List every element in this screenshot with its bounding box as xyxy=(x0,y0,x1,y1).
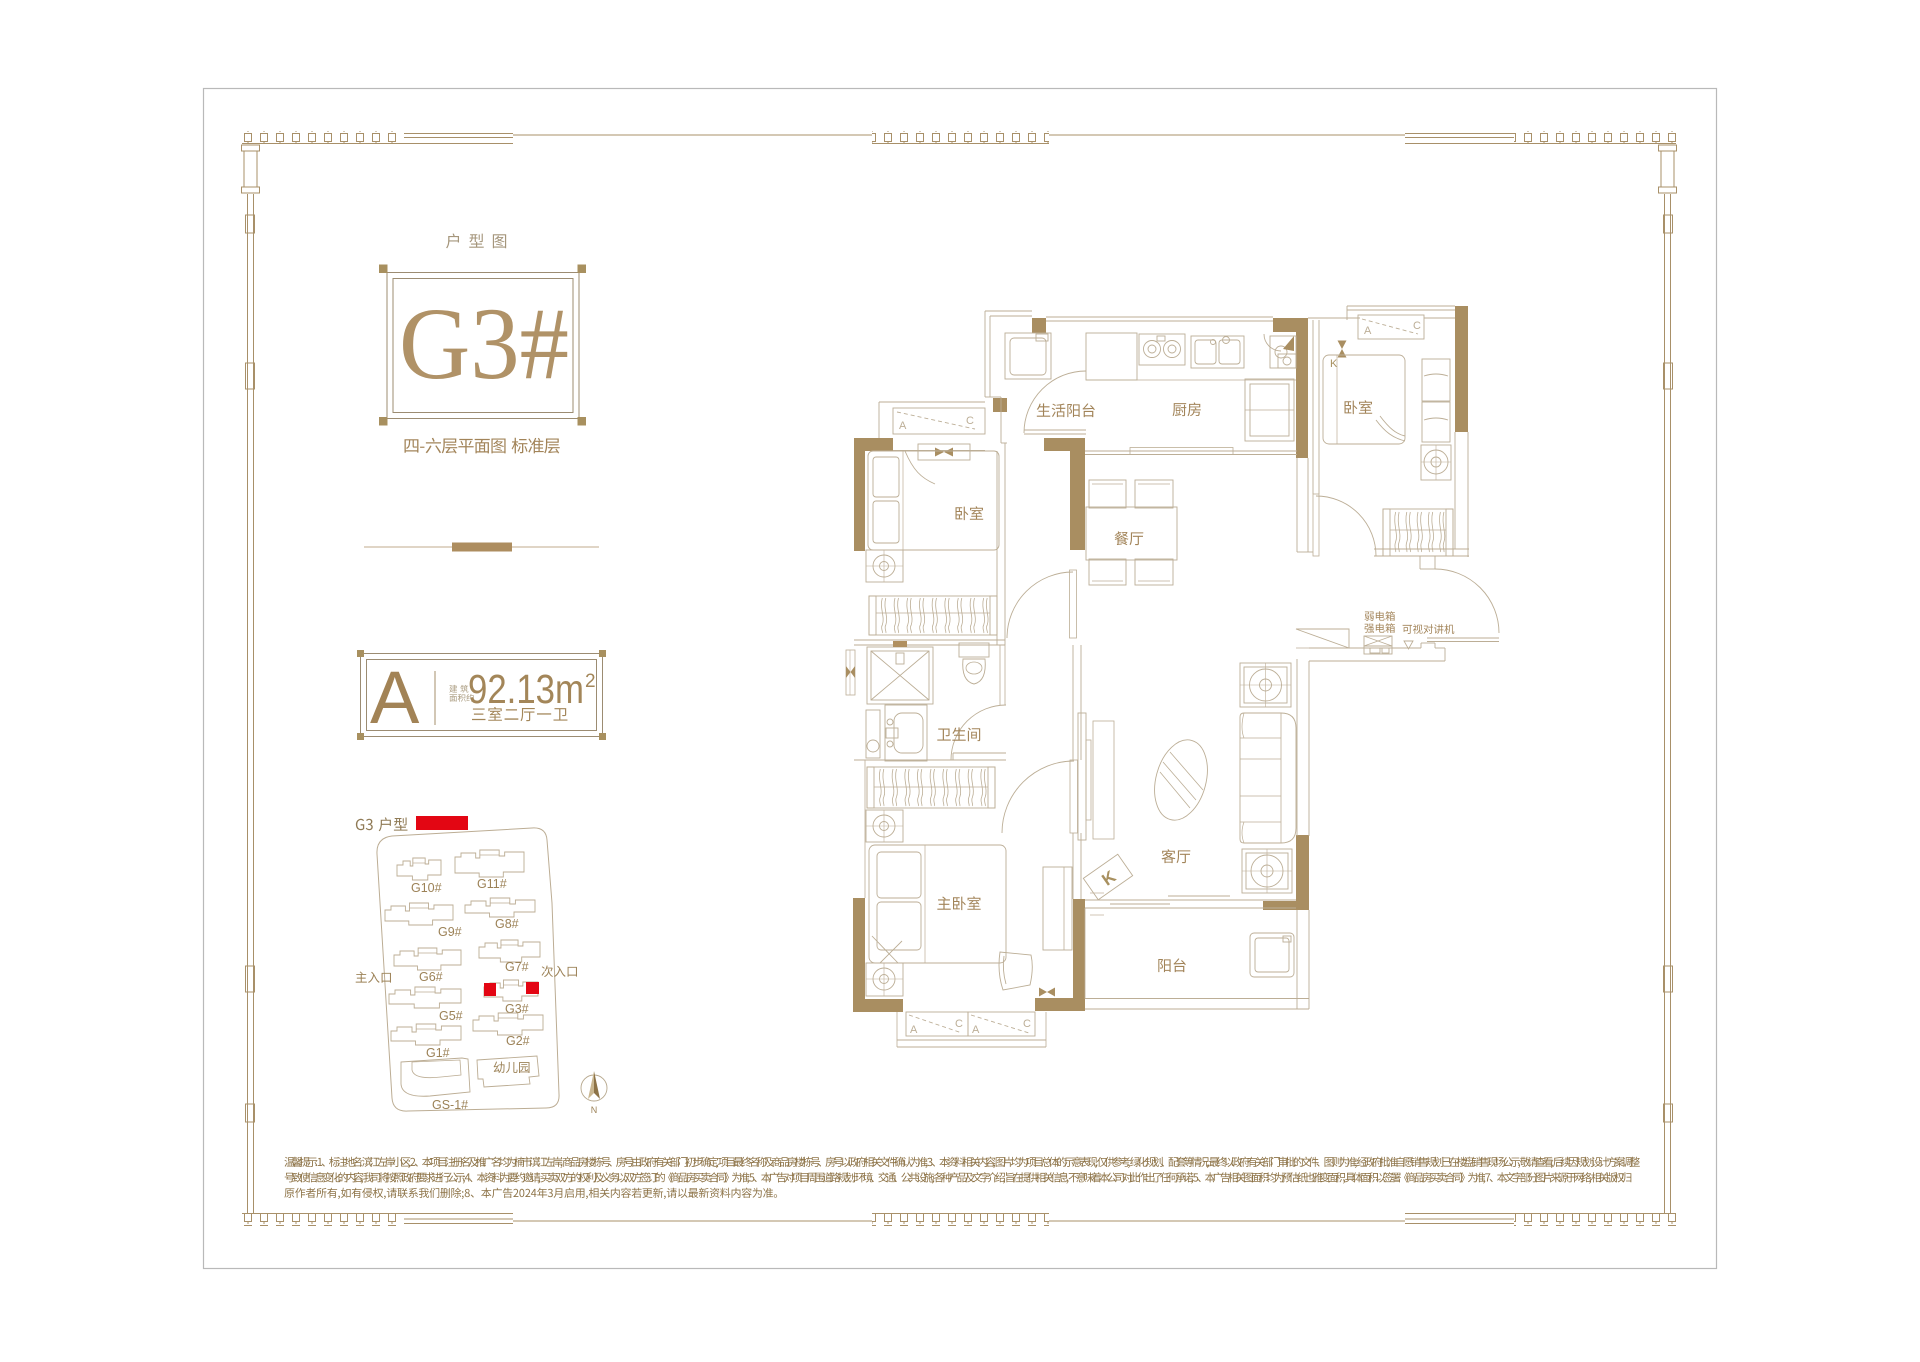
svg-text:G7#: G7# xyxy=(505,960,529,974)
svg-text:A: A xyxy=(972,1024,980,1036)
svg-text:G8#: G8# xyxy=(495,917,519,931)
svg-text:A: A xyxy=(910,1024,918,1036)
svg-text:A: A xyxy=(370,656,420,739)
svg-text:92.13m: 92.13m xyxy=(468,666,584,712)
svg-text:C: C xyxy=(955,1018,963,1030)
svg-text:C: C xyxy=(966,415,974,427)
svg-text:GS-1#: GS-1# xyxy=(432,1098,468,1112)
svg-text:G2#: G2# xyxy=(506,1034,530,1048)
svg-text:G10#: G10# xyxy=(411,881,442,895)
svg-text:C: C xyxy=(1413,320,1421,332)
svg-text:2: 2 xyxy=(585,671,596,692)
svg-text:G3#: G3# xyxy=(399,287,569,401)
svg-text:G11#: G11# xyxy=(477,877,507,891)
svg-text:A: A xyxy=(899,420,907,432)
svg-text:G3#: G3# xyxy=(505,1002,529,1016)
svg-text:C: C xyxy=(1023,1018,1031,1030)
svg-text:G6#: G6# xyxy=(419,970,443,984)
svg-text:A: A xyxy=(1364,325,1372,337)
svg-text:G1#: G1# xyxy=(426,1046,450,1060)
svg-text:N: N xyxy=(591,1105,598,1115)
svg-text:G9#: G9# xyxy=(438,925,462,939)
svg-text:G5#: G5# xyxy=(439,1009,463,1023)
